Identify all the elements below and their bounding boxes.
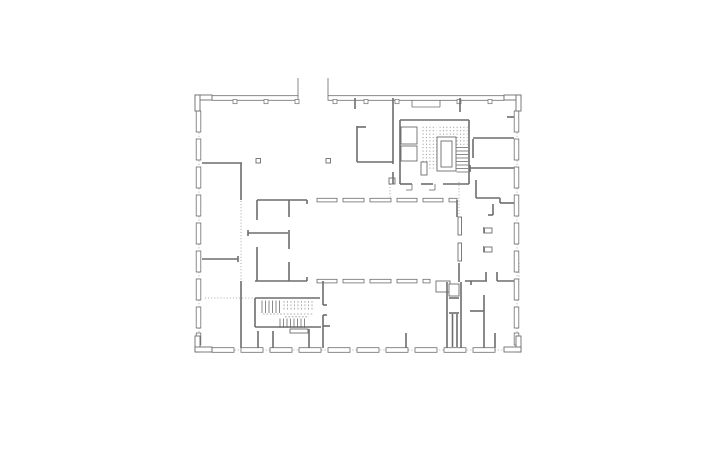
windows-element <box>423 198 443 202</box>
windows-element <box>449 198 457 202</box>
corners-element <box>195 95 200 111</box>
floor-plan-svg <box>0 0 720 450</box>
windows-element <box>514 251 519 272</box>
windows-element <box>196 139 201 160</box>
floor-plan-page <box>0 0 720 450</box>
windows-element <box>317 198 337 202</box>
canvas-background <box>0 0 720 450</box>
boxes-element <box>421 162 427 175</box>
windows-element <box>423 279 430 283</box>
windows-element <box>444 348 466 353</box>
posts-element <box>295 100 299 104</box>
windows-element <box>397 279 417 283</box>
boxes-element <box>458 217 462 235</box>
windows-element <box>196 167 201 188</box>
windows-element <box>212 348 234 353</box>
corners-element <box>516 95 521 111</box>
windows-element <box>415 348 437 353</box>
corners-element <box>195 347 212 352</box>
boxes-element <box>485 228 493 233</box>
windows-element <box>241 348 263 353</box>
windows-element <box>514 195 519 216</box>
hatch-element <box>438 125 456 136</box>
windows-element <box>196 111 201 132</box>
windows-element <box>196 223 201 244</box>
windows-element <box>514 223 519 244</box>
posts-element <box>233 100 237 104</box>
windows-element <box>514 307 519 328</box>
posts-element <box>488 100 492 104</box>
boxes-element <box>401 127 417 144</box>
boxes-element <box>256 159 261 164</box>
windows-element <box>196 251 201 272</box>
windows-element <box>299 348 321 353</box>
boxes-element <box>326 159 331 164</box>
windows-element <box>196 307 201 328</box>
windows-element <box>343 279 364 283</box>
windows-element <box>514 139 519 160</box>
windows-element <box>397 198 417 202</box>
hatch-element <box>457 125 468 146</box>
corners-element <box>504 347 521 352</box>
windows-element <box>196 195 201 216</box>
boxes-element <box>485 247 493 252</box>
posts-element <box>333 100 337 104</box>
windows-element <box>212 96 298 101</box>
windows-element <box>514 167 519 188</box>
windows-element <box>343 198 364 202</box>
posts-element <box>364 100 368 104</box>
posts-element <box>264 100 268 104</box>
windows-element <box>386 348 408 353</box>
windows-element <box>370 279 391 283</box>
windows-element <box>357 348 379 353</box>
boxes-element <box>449 284 459 296</box>
posts-element <box>395 100 399 104</box>
windows-element <box>473 348 495 353</box>
windows-element <box>196 279 201 300</box>
windows-element <box>317 279 337 283</box>
boxes-element <box>389 178 395 184</box>
boxes-element <box>458 243 462 261</box>
windows-element <box>514 111 519 132</box>
windows-element <box>270 348 292 353</box>
boxes-element <box>441 141 452 167</box>
boxes-element <box>436 281 450 292</box>
windows-element <box>328 348 350 353</box>
windows-element <box>370 198 391 202</box>
boxes-element <box>401 146 417 161</box>
windows-element <box>514 279 519 300</box>
boxes-element <box>290 329 308 333</box>
